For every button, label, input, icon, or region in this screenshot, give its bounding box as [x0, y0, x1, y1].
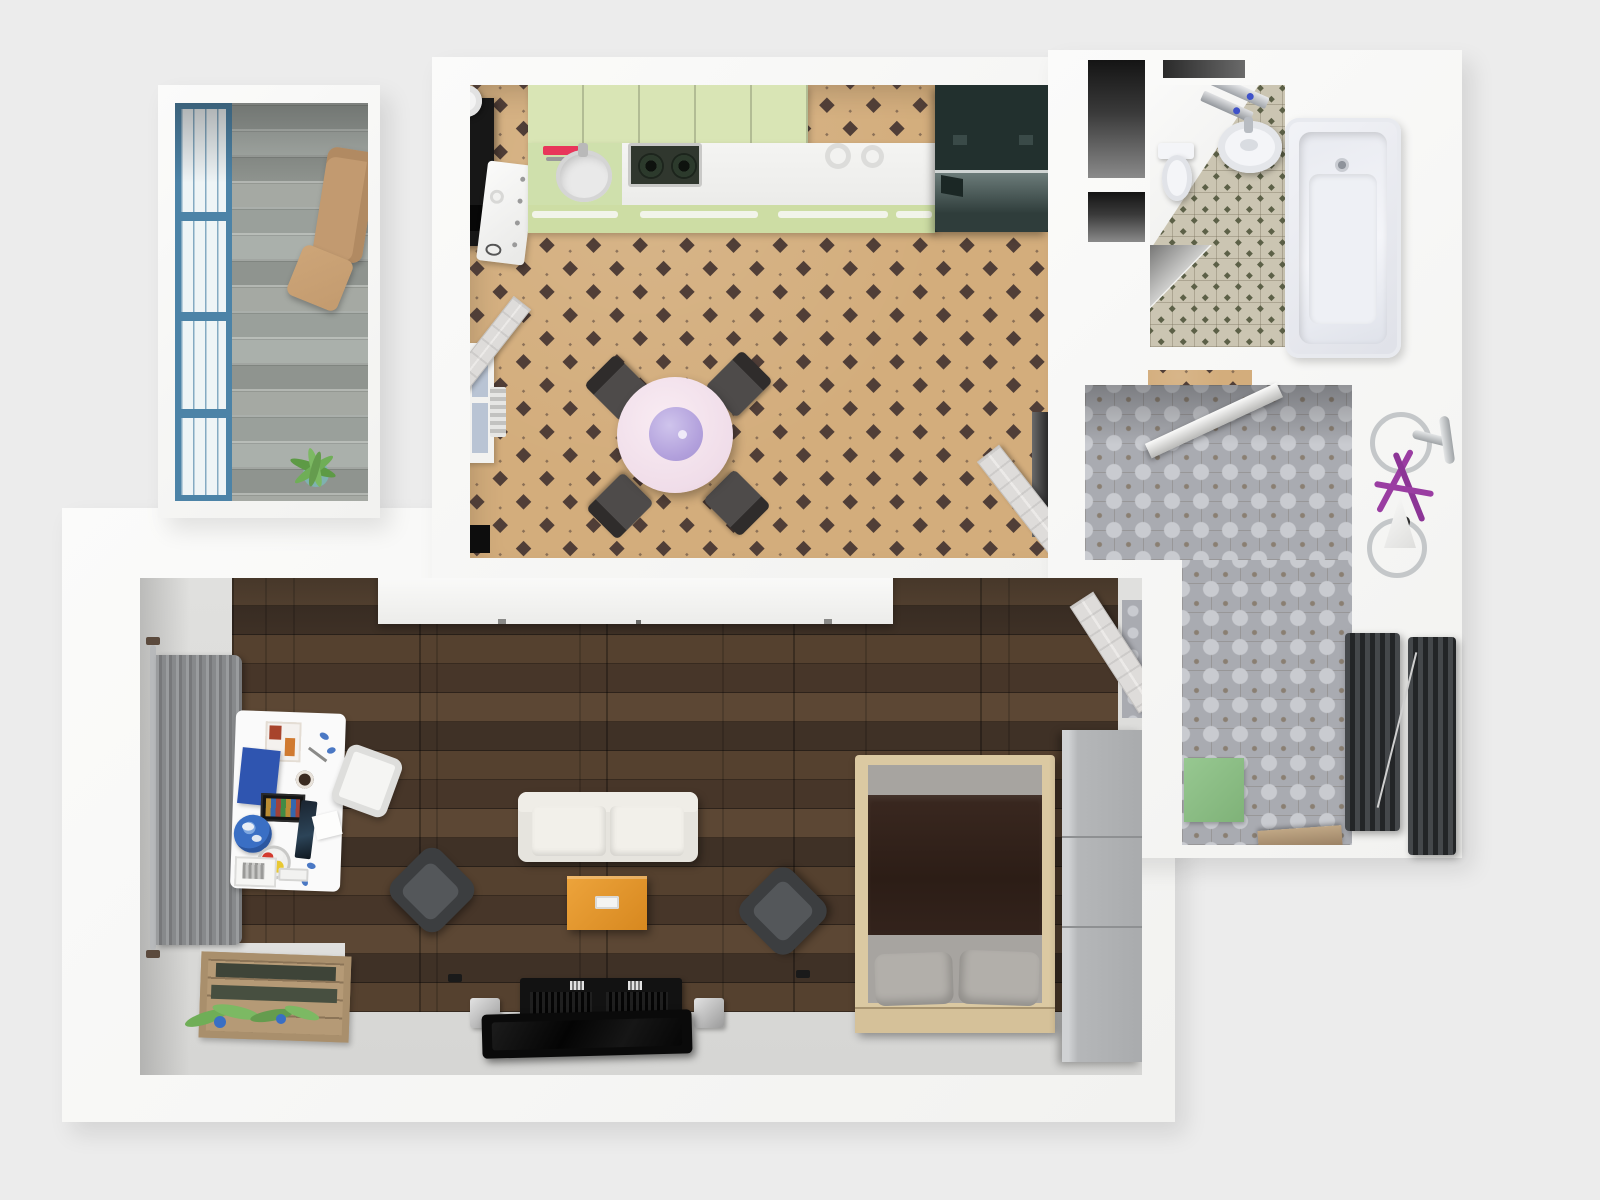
crate-plants	[184, 998, 324, 1048]
pillow	[874, 952, 954, 1007]
desk	[230, 710, 346, 892]
bath-niche	[1088, 192, 1145, 242]
speaker-right	[694, 998, 724, 1028]
kitchen-upper-cabinets	[528, 85, 808, 145]
balcony-plant	[285, 443, 341, 499]
bath-niche	[1163, 60, 1245, 78]
floor-plan	[0, 0, 1600, 1200]
balcony	[175, 103, 368, 501]
coffee-table	[567, 876, 647, 930]
tv-panel	[481, 1009, 692, 1058]
hall-radiator-a	[1345, 633, 1400, 831]
bath-niche	[1088, 60, 1145, 178]
kitchen-lower-cabinets	[528, 205, 935, 233]
coffee-cup	[295, 770, 314, 789]
hallway-lower	[1182, 560, 1352, 845]
kitchen-trash-bin	[470, 525, 490, 553]
typewriter	[234, 856, 277, 887]
table-centerpiece	[649, 407, 703, 461]
pillow	[958, 950, 1040, 1007]
kitchen	[470, 85, 1048, 558]
paper-sheet	[312, 811, 343, 841]
kitchen-hob	[628, 143, 702, 187]
kitchen-sink	[556, 150, 612, 202]
bathtub	[1285, 118, 1401, 358]
sofa	[518, 792, 698, 862]
toilet	[1156, 143, 1196, 205]
keyboard	[278, 868, 308, 882]
kitchen-radiator	[490, 387, 506, 437]
hall-step	[1257, 825, 1342, 845]
kitchen-fridge	[935, 85, 1048, 232]
bed	[855, 755, 1055, 1033]
kitchen-dishes	[825, 141, 889, 171]
bicycle	[1340, 398, 1462, 613]
living-room	[140, 578, 1142, 1075]
hall-radiator-b	[1408, 637, 1456, 855]
bath-sink	[1218, 121, 1282, 173]
bathroom	[1150, 85, 1285, 347]
curtain	[156, 655, 242, 945]
hall-doormat	[1184, 758, 1244, 822]
sideboard	[378, 578, 893, 624]
wardrobe	[1062, 730, 1142, 1062]
